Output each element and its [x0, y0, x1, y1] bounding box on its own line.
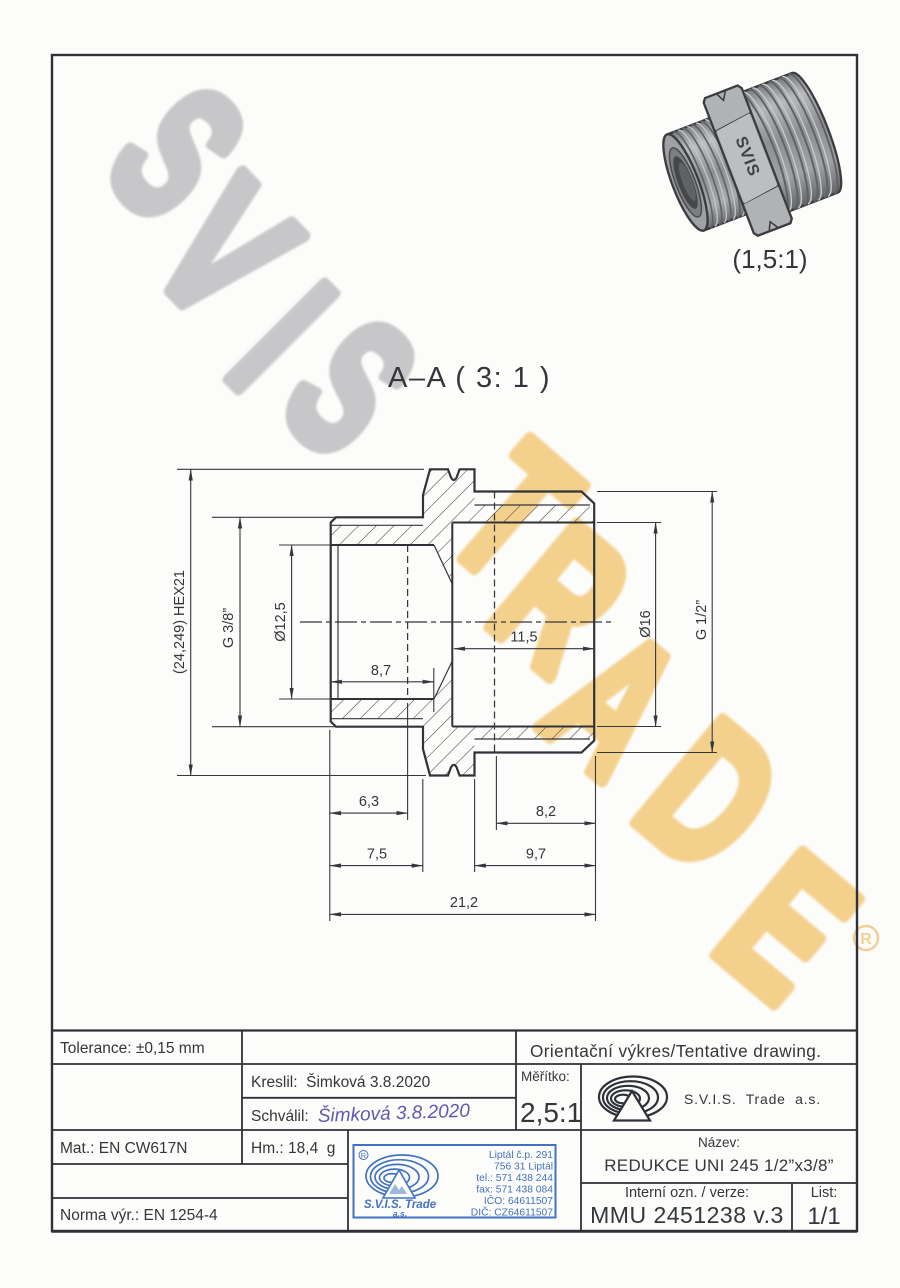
svg-text:G 1/2”: G 1/2” [694, 600, 710, 640]
svg-text:MMU 2451238 v.3: MMU 2451238 v.3 [590, 1202, 784, 1228]
svg-text:1/1: 1/1 [807, 1203, 840, 1230]
svg-text:R: R [361, 1151, 367, 1160]
svg-text:8,2: 8,2 [536, 804, 556, 820]
svg-text:G 3/8”: G 3/8” [221, 608, 237, 648]
svg-text:List:: List: [811, 1185, 838, 1201]
svg-text:Norma výr.: EN 1254-4: Norma výr.: EN 1254-4 [60, 1207, 218, 1224]
svg-text:Mat.: EN CW617N: Mat.: EN CW617N [60, 1140, 187, 1157]
svg-text:Schválil:: Schválil: [251, 1108, 309, 1125]
svg-text:11,5: 11,5 [510, 630, 537, 646]
svg-text:756 31 Liptál: 756 31 Liptál [494, 1162, 553, 1173]
svg-text:8,7: 8,7 [371, 663, 391, 679]
svg-text:Hm.: 18,4 g: Hm.: 18,4 g [251, 1140, 335, 1157]
svg-text:a.s.: a.s. [393, 1209, 407, 1219]
svg-text:REDUKCE UNI 245 1/2”x3/8”: REDUKCE UNI 245 1/2”x3/8” [604, 1156, 834, 1175]
svg-text:A–A ( 3: 1 ): A–A ( 3: 1 ) [388, 362, 551, 394]
svg-text:(1,5:1): (1,5:1) [732, 244, 807, 274]
svg-text:tel.: 571 438 244: tel.: 571 438 244 [476, 1173, 553, 1184]
svg-text:DIČ: CZ64611507: DIČ: CZ64611507 [471, 1206, 554, 1219]
svg-text:6,3: 6,3 [359, 794, 379, 810]
svg-text:Kreslil: Šimková 3.8.2020: Kreslil: Šimková 3.8.2020 [251, 1074, 431, 1091]
svg-text:Název:: Název: [698, 1135, 740, 1150]
svg-text:(24,249) HEX21: (24,249) HEX21 [172, 570, 188, 674]
svg-text:fax: 571 438 084: fax: 571 438 084 [476, 1185, 553, 1196]
svg-text:7,5: 7,5 [367, 847, 387, 863]
svg-text:9,7: 9,7 [526, 847, 546, 863]
svg-text:Tolerance: ±0,15 mm: Tolerance: ±0,15 mm [60, 1040, 205, 1057]
svg-text:Ø16: Ø16 [638, 610, 654, 637]
svg-text:IČO: 64611507: IČO: 64611507 [484, 1194, 553, 1207]
svg-text:Ø12,5: Ø12,5 [273, 602, 289, 642]
svg-text:Orientační výkres/Tentative dr: Orientační výkres/Tentative drawing. [530, 1041, 821, 1061]
svg-text:Měřítko:: Měřítko: [521, 1069, 570, 1084]
svg-text:Interní ozn. / verze:: Interní ozn. / verze: [625, 1185, 749, 1201]
svg-text:21,2: 21,2 [450, 895, 478, 911]
svg-text:R: R [860, 931, 872, 948]
svg-text:S.V.I.S. Trade a.s.: S.V.I.S. Trade a.s. [684, 1091, 821, 1107]
svg-text:2,5:1: 2,5:1 [520, 1097, 582, 1128]
svg-text:Liptál č.p. 291: Liptál č.p. 291 [489, 1150, 553, 1161]
